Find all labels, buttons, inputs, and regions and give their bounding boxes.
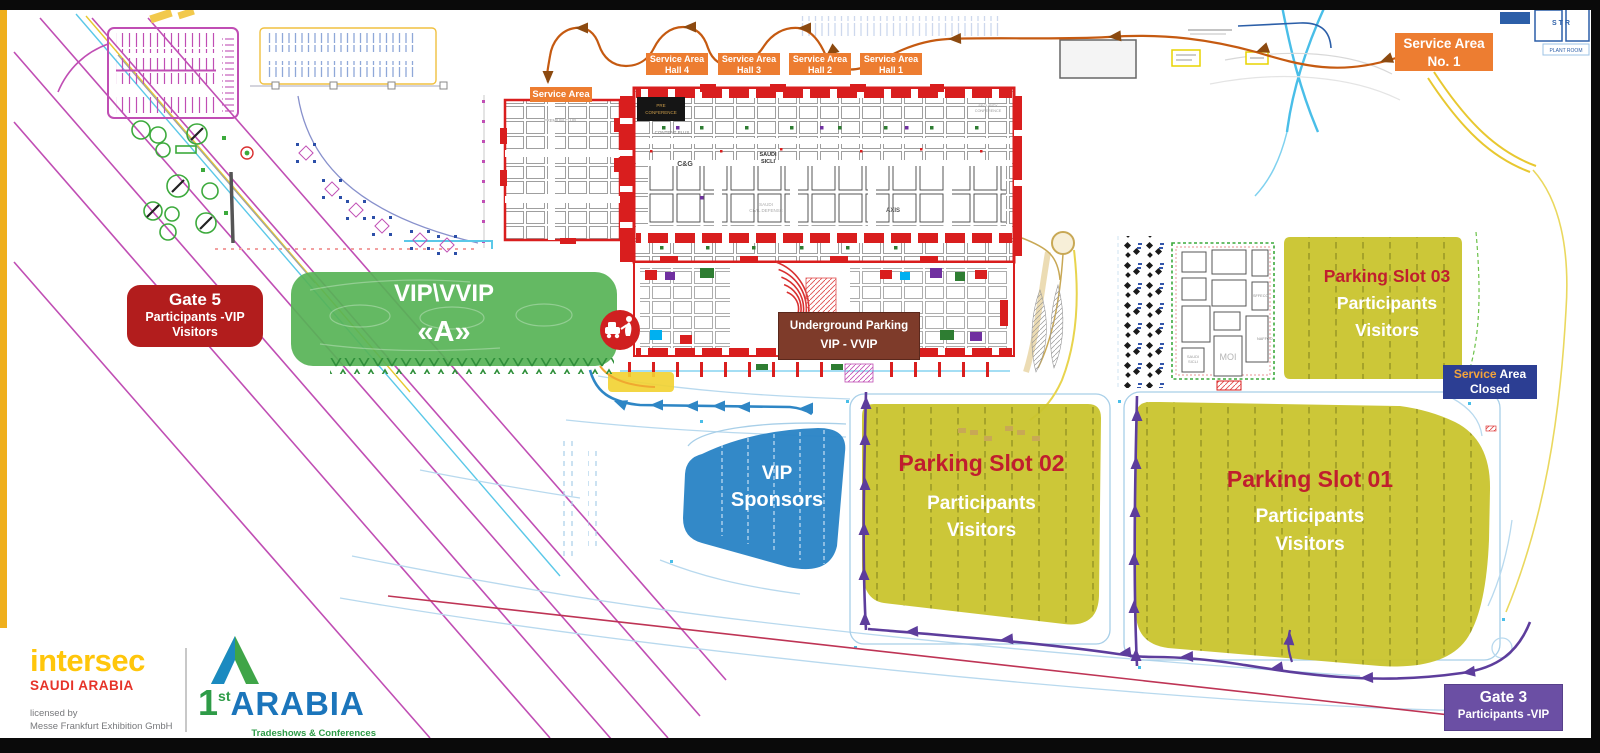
- svg-text:CONFERENCE: CONFERENCE: [645, 110, 677, 115]
- service-area-closed-label: Service Area Closed: [1443, 365, 1537, 399]
- vip-sponsors-label: VIP Sponsors: [702, 462, 852, 514]
- frame-bottom: [0, 738, 1600, 753]
- checkpoint-icon: [600, 310, 640, 350]
- svg-text:CONTENT PLUS: CONTENT PLUS: [655, 130, 690, 135]
- main-hall: PRE CONFERENCE CONTENT PLUS C&G SAUDI: [634, 84, 1022, 264]
- svg-text:PREMIUM CLUB: PREMIUM CLUB: [544, 118, 576, 123]
- svg-text:CONFERENCE: CONFERENCE: [975, 109, 1002, 113]
- edge-yellow-strip: [0, 10, 7, 628]
- svg-text:S T R: S T R: [1552, 20, 1570, 27]
- frame-top: [0, 0, 1600, 10]
- svg-text:MOI: MOI: [1220, 352, 1237, 362]
- intersec-logo: intersec SAUDI ARABIA licensed by Messe …: [30, 646, 180, 733]
- service-area-hall4-label: Service Area Hall 4: [646, 53, 708, 75]
- outdoor-exhibits: MOI SAUDI SICLI NAFFCO SFFECO: [1172, 243, 1274, 390]
- service-area-hall3-label: Service Area Hall 3: [718, 53, 780, 75]
- parking-slot-01-label: Parking Slot 01 Participants Visitors: [1170, 466, 1450, 556]
- arabia-logo: 1stARABIA Tradeshows & Conferences: [198, 634, 378, 738]
- palm-strip: [1122, 236, 1168, 388]
- svg-text:C&G: C&G: [677, 161, 693, 168]
- svg-text:PLANT ROOM: PLANT ROOM: [1550, 48, 1583, 54]
- vip-vvip-label: VIP\VVIP «A»: [295, 281, 593, 347]
- svg-text:SECURITY: SECURITY: [978, 104, 998, 108]
- svg-text:SAUDI: SAUDI: [759, 202, 773, 207]
- site-map-page: MOI SAUDI SICLI NAFFCO SFFECO PREMIUM CL…: [0, 0, 1600, 753]
- svg-text:AXIS: AXIS: [886, 208, 900, 214]
- underground-parking-label: Underground Parking VIP - VVIP: [778, 312, 920, 360]
- parking-slot-02-label: Parking Slot 02 Participants Visitors: [862, 450, 1101, 542]
- svg-text:NAFFCO: NAFFCO: [1257, 337, 1273, 341]
- svg-text:SICLI: SICLI: [761, 159, 776, 165]
- svg-text:PRE: PRE: [656, 103, 665, 108]
- svg-text:CIVIL DEFENSE: CIVIL DEFENSE: [749, 208, 783, 213]
- service-area-label: Service Area: [530, 87, 592, 102]
- hall-annex: PREMIUM CLUB: [500, 95, 621, 244]
- arabia-mountain-icon: [206, 634, 264, 688]
- gate3-label: Gate 3 Participants -VIP: [1444, 684, 1563, 731]
- service-area-no1-label: Service Area No. 1: [1395, 33, 1493, 71]
- svg-text:SICLI: SICLI: [1188, 359, 1198, 364]
- svg-text:SAUDI: SAUDI: [759, 152, 777, 158]
- gate5-label: Gate 5 Participants -VIP Visitors: [127, 285, 263, 347]
- service-area-hall1-label: Service Area Hall 1: [860, 53, 922, 75]
- svg-text:SFFECO: SFFECO: [1253, 294, 1268, 298]
- logo-divider: [185, 648, 187, 732]
- frame-right: [1591, 0, 1600, 753]
- parking-slot-03-label: Parking Slot 03 Participants Visitors: [1292, 266, 1482, 340]
- hall-corridor: [620, 96, 634, 262]
- service-area-hall2-label: Service Area Hall 2: [789, 53, 851, 75]
